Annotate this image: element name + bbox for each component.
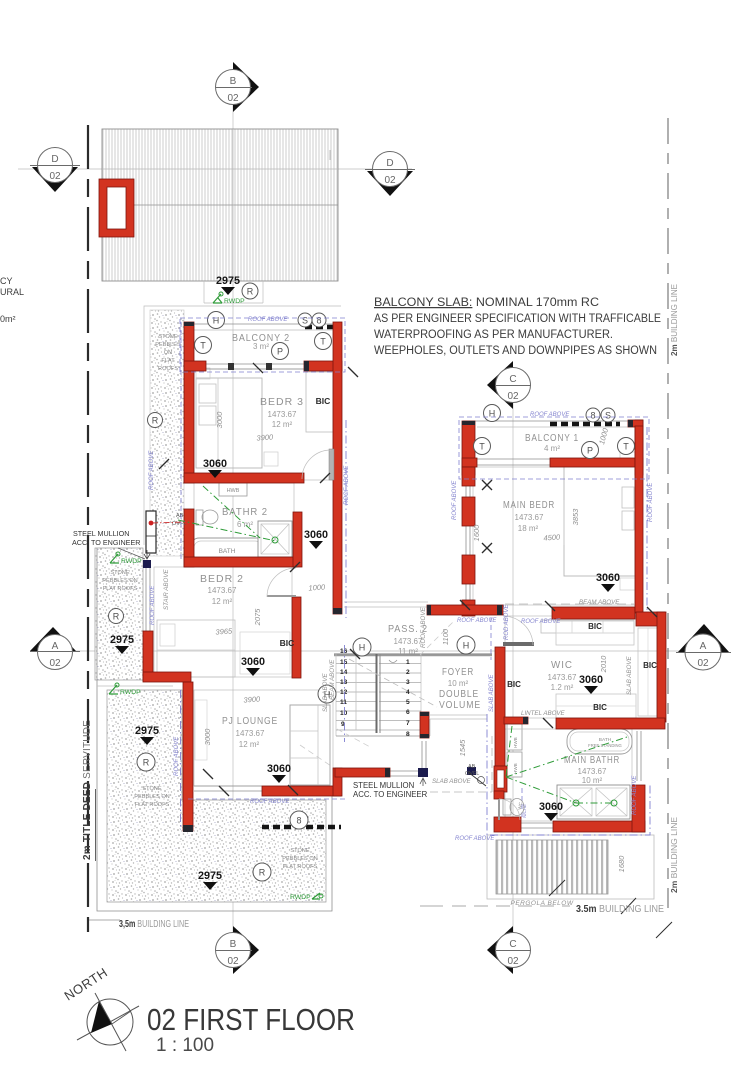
svg-text:1680: 1680	[617, 855, 626, 873]
svg-text:H: H	[359, 643, 366, 653]
svg-text:6 m²: 6 m²	[237, 520, 253, 529]
svg-text:1600: 1600	[472, 524, 481, 542]
svg-text:ROOF ABOVE: ROOF ABOVE	[455, 836, 495, 842]
svg-text:S: S	[605, 411, 611, 421]
svg-text:3060: 3060	[539, 801, 563, 813]
svg-text:WEEPHOLES, OUTLETS AND DOWNPIP: WEEPHOLES, OUTLETS AND DOWNPIPES AS SHOW…	[374, 343, 657, 357]
svg-text:HWB: HWB	[513, 763, 518, 774]
svg-text:3,5m BUILDING LINE: 3,5m BUILDING LINE	[119, 919, 189, 930]
svg-text:0m²: 0m²	[0, 314, 16, 324]
svg-text:3060: 3060	[203, 458, 227, 470]
svg-text:FLAT ROOFS: FLAT ROOFS	[283, 864, 318, 870]
svg-text:BEDR 2: BEDR 2	[200, 573, 244, 585]
svg-text:H: H	[213, 316, 220, 326]
svg-text:3060: 3060	[596, 572, 620, 584]
svg-text:PEBBLES ON: PEBBLES ON	[134, 794, 169, 800]
svg-text:1 : 100: 1 : 100	[156, 1035, 214, 1056]
svg-text:ROOF ABOVE: ROOF ABOVE	[457, 618, 497, 624]
svg-text:BALCONY SLAB: NOMINAL 170mm RC: BALCONY SLAB: NOMINAL 170mm RC	[374, 295, 599, 309]
svg-text:T: T	[623, 442, 629, 452]
svg-text:DOUBLE: DOUBLE	[439, 689, 479, 700]
svg-text:1.2 m²: 1.2 m²	[551, 683, 574, 692]
svg-text:B: B	[230, 76, 237, 87]
svg-text:MAIN BATHR: MAIN BATHR	[564, 754, 620, 766]
svg-text:1545: 1545	[458, 739, 467, 757]
svg-text:RWDP: RWDP	[120, 689, 141, 696]
svg-text:ROOF ABOVE: ROOF ABOVE	[174, 736, 180, 776]
svg-text:13: 13	[340, 679, 348, 686]
svg-text:2010: 2010	[599, 655, 608, 674]
svg-text:1000: 1000	[308, 582, 326, 592]
svg-text:4 m²: 4 m²	[544, 444, 560, 453]
svg-text:12 m²: 12 m²	[239, 740, 260, 749]
svg-text:12: 12	[340, 689, 348, 696]
svg-text:3060: 3060	[241, 656, 265, 668]
svg-text:02: 02	[507, 391, 519, 402]
svg-text:ROOF ABOVE: ROOF ABOVE	[452, 480, 458, 520]
svg-text:STONE: STONE	[142, 786, 161, 792]
svg-text:2m BUILDING LINE: 2m BUILDING LINE	[670, 817, 679, 893]
svg-text:C: C	[509, 374, 516, 385]
svg-text:11 m²: 11 m²	[398, 647, 418, 656]
svg-text:SLAB ABOVE: SLAB ABOVE	[322, 672, 329, 712]
svg-text:WATERPROOFING AS PER MANUFACTU: WATERPROOFING AS PER MANUFACTURER.	[374, 327, 613, 341]
svg-text:ROD ABOVE: ROD ABOVE	[504, 604, 510, 640]
svg-text:16: 16	[340, 648, 348, 655]
svg-text:R: R	[247, 287, 254, 297]
svg-text:5: 5	[406, 699, 410, 706]
svg-text:FLAT ROOFS: FLAT ROOFS	[135, 802, 170, 808]
svg-text:6: 6	[406, 709, 410, 716]
svg-text:AS PER ENGINEER SPECIFICATION: AS PER ENGINEER SPECIFICATION WITH TRAFF…	[374, 311, 661, 325]
svg-text:BEAM ABOVE: BEAM ABOVE	[579, 599, 620, 606]
svg-text:02: 02	[49, 171, 61, 182]
svg-text:HWB: HWB	[513, 737, 518, 748]
svg-text:3900: 3900	[256, 432, 274, 442]
svg-text:T: T	[479, 442, 485, 452]
svg-text:R: R	[259, 868, 266, 878]
svg-text:12 m²: 12 m²	[272, 420, 293, 429]
svg-text:2: 2	[406, 669, 410, 676]
svg-text:1473.67: 1473.67	[394, 637, 423, 646]
svg-text:02: 02	[507, 956, 519, 967]
svg-text:3060: 3060	[579, 674, 603, 686]
svg-text:3060: 3060	[304, 529, 328, 541]
svg-text:ROOF ABOVE: ROOF ABOVE	[648, 482, 654, 522]
svg-text:D: D	[386, 158, 393, 169]
svg-text:1473.67: 1473.67	[548, 673, 577, 682]
svg-text:OVFL: OVFL	[465, 771, 479, 777]
svg-text:3.5m BUILDING LINE: 3.5m BUILDING LINE	[576, 904, 664, 915]
svg-text:PEBBLES: PEBBLES	[155, 342, 181, 348]
svg-text:1473.67: 1473.67	[578, 767, 607, 776]
svg-text:2975: 2975	[135, 725, 159, 737]
svg-text:H: H	[463, 641, 470, 651]
svg-text:HWB: HWB	[227, 488, 240, 494]
svg-text:ON: ON	[164, 350, 172, 356]
svg-text:RWDP: RWDP	[121, 558, 142, 565]
svg-text:14: 14	[340, 669, 348, 676]
svg-text:BIC: BIC	[316, 396, 331, 406]
svg-text:ROOF ABOVE: ROOF ABOVE	[150, 585, 156, 625]
svg-text:ROOF ABOVE: ROOF ABOVE	[420, 607, 427, 648]
svg-text:BIC: BIC	[588, 622, 602, 631]
svg-text:ROOF ABOVE: ROOF ABOVE	[149, 450, 155, 490]
svg-text:3965: 3965	[215, 626, 233, 636]
svg-text:ACC. TO ENGINEER: ACC. TO ENGINEER	[72, 538, 140, 547]
svg-text:SLAB ABOVE: SLAB ABOVE	[489, 674, 495, 712]
svg-text:RWDP: RWDP	[224, 298, 245, 305]
svg-text:PJ LOUNGE: PJ LOUNGE	[222, 715, 278, 727]
svg-text:STAIR ABOVE: STAIR ABOVE	[163, 569, 170, 610]
svg-text:BATH: BATH	[219, 548, 236, 555]
svg-text:2975: 2975	[198, 870, 222, 882]
svg-text:3853: 3853	[571, 508, 580, 526]
svg-text:R: R	[113, 612, 120, 622]
svg-text:FLAT ROOFS: FLAT ROOFS	[103, 586, 138, 592]
svg-text:11: 11	[340, 699, 347, 706]
svg-text:2m TITLE DEED SERVITUDE: 2m TITLE DEED SERVITUDE	[82, 720, 93, 860]
svg-text:1473.67: 1473.67	[236, 729, 265, 738]
svg-text:FOYER: FOYER	[442, 667, 474, 678]
svg-text:2m BUILDING LINE: 2m BUILDING LINE	[669, 284, 679, 356]
svg-text:A: A	[700, 641, 707, 652]
svg-text:10 m²: 10 m²	[582, 776, 603, 785]
svg-text:ROOF ABOVE: ROOF ABOVE	[250, 799, 290, 805]
svg-text:4500: 4500	[543, 532, 561, 542]
svg-text:2075: 2075	[253, 608, 262, 627]
svg-text:18 m²: 18 m²	[518, 524, 539, 533]
svg-text:AB: AB	[176, 513, 184, 519]
svg-text:STONE: STONE	[158, 334, 177, 340]
svg-text:BIC: BIC	[507, 680, 521, 689]
svg-text:S: S	[302, 316, 308, 326]
svg-text:3060: 3060	[267, 763, 291, 775]
svg-text:BATHR 2: BATHR 2	[222, 506, 268, 518]
svg-text:2975: 2975	[216, 275, 240, 287]
svg-text:STONE: STONE	[110, 570, 129, 576]
svg-text:8: 8	[406, 731, 410, 738]
svg-text:3000: 3000	[203, 728, 212, 746]
svg-text:1473.67: 1473.67	[268, 410, 297, 419]
svg-text:1: 1	[406, 659, 410, 666]
svg-text:7: 7	[406, 720, 410, 727]
svg-text:R: R	[143, 758, 150, 768]
svg-text:MAIN BEDR: MAIN BEDR	[503, 499, 555, 511]
svg-text:WIC: WIC	[551, 660, 573, 671]
svg-text:ROOF ABOVE: ROOF ABOVE	[530, 412, 570, 418]
svg-text:T: T	[200, 341, 206, 351]
svg-text:LINTEL ABOVE: LINTEL ABOVE	[521, 710, 566, 717]
svg-text:02: 02	[49, 658, 61, 669]
svg-text:R: R	[152, 416, 159, 426]
svg-text:PEBBLES ON: PEBBLES ON	[282, 856, 317, 862]
svg-text:ROOF ABOVE: ROOF ABOVE	[521, 619, 561, 625]
svg-text:BIC: BIC	[643, 661, 657, 670]
svg-text:BIC: BIC	[593, 703, 607, 712]
svg-text:ROOF ABOVE: ROOF ABOVE	[632, 775, 638, 815]
svg-text:3000: 3000	[215, 411, 224, 429]
svg-text:STONE: STONE	[290, 848, 309, 854]
svg-text:BALCONY 1: BALCONY 1	[525, 432, 579, 444]
svg-text:P: P	[587, 446, 593, 456]
svg-text:B: B	[230, 939, 237, 950]
svg-text:02: 02	[384, 175, 396, 186]
svg-text:1473.67: 1473.67	[515, 513, 544, 522]
svg-text:ROOF ABOVE: ROOF ABOVE	[248, 317, 288, 323]
svg-text:SLAB ABOVE: SLAB ABOVE	[626, 655, 633, 695]
svg-text:1473.67: 1473.67	[208, 586, 237, 595]
svg-text:12 m²: 12 m²	[212, 597, 233, 606]
svg-text:D: D	[51, 154, 58, 165]
svg-text:C: C	[509, 939, 516, 950]
svg-text:STEEL MULLION: STEEL MULLION	[73, 529, 129, 538]
svg-text:8: 8	[316, 316, 321, 326]
svg-text:CY: CY	[0, 276, 13, 286]
svg-text:BEAM ABOVE: BEAM ABOVE	[329, 659, 336, 700]
svg-text:ACC. TO ENGINEER: ACC. TO ENGINEER	[353, 790, 428, 799]
svg-text:1100: 1100	[441, 628, 450, 645]
svg-text:ROOF ABOVE: ROOF ABOVE	[344, 465, 350, 505]
svg-text:ROOFS: ROOFS	[158, 366, 178, 372]
svg-text:PEBBLES ON: PEBBLES ON	[102, 578, 137, 584]
svg-text:RWDP: RWDP	[290, 894, 311, 901]
svg-text:T: T	[320, 337, 326, 347]
svg-text:VOLUME: VOLUME	[439, 700, 481, 711]
svg-text:02: 02	[697, 658, 709, 669]
svg-text:STEEL MULLION: STEEL MULLION	[353, 781, 414, 790]
svg-text:BEDR 3: BEDR 3	[260, 396, 304, 408]
svg-text:BIC: BIC	[280, 638, 295, 648]
svg-text:A: A	[52, 641, 59, 652]
svg-text:10: 10	[340, 710, 348, 717]
svg-text:URAL: URAL	[0, 287, 24, 297]
svg-text:02: 02	[227, 956, 239, 967]
svg-text:P: P	[277, 347, 283, 357]
svg-text:3900: 3900	[243, 694, 261, 704]
svg-text:SLAB ABOVE: SLAB ABOVE	[432, 778, 472, 785]
svg-text:3: 3	[406, 679, 410, 686]
svg-text:8: 8	[296, 816, 301, 826]
svg-text:AB: AB	[468, 764, 476, 770]
svg-text:10 m²: 10 m²	[448, 679, 469, 688]
svg-text:3 m²: 3 m²	[253, 342, 269, 351]
svg-text:15: 15	[340, 659, 348, 666]
svg-text:02: 02	[227, 93, 239, 104]
svg-text:2975: 2975	[110, 634, 134, 646]
svg-text:8: 8	[590, 411, 595, 421]
svg-text:02 FIRST FLOOR: 02 FIRST FLOOR	[147, 1002, 355, 1037]
svg-text:FLAT: FLAT	[161, 358, 175, 364]
